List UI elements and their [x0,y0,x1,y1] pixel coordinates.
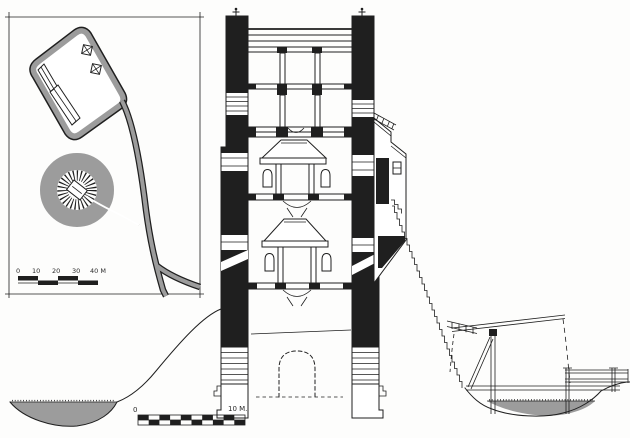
hood-mantel-beam [262,241,328,247]
scale-segment [138,415,149,420]
timber-post [280,53,285,84]
forebuilding-masonry [376,158,389,204]
timber-post [315,95,320,127]
inset-scale-segment [58,276,78,281]
floor-joist [311,127,323,137]
post-capital [312,89,322,95]
inset-scale-label: 0 [16,267,20,275]
floor-joist [248,194,256,200]
right-foundation-stripes [352,347,379,384]
floor-joist [344,194,352,200]
inset-scale-label: 10 [32,267,40,275]
floor-joist [248,127,256,137]
scale-segment [213,420,224,425]
post-capital [277,89,287,95]
drawing-page: 0 10 20 30 40 M [0,0,630,438]
right-wall-masonry [352,117,374,147]
scale-segment [192,420,203,425]
floor-joist [248,84,256,89]
tower-symbol-icon [82,45,93,56]
floor-joist [344,127,352,137]
castle-section-drawing: 0 10 20 30 40 M [0,0,630,438]
right-wall-masonry [352,16,374,100]
scale-segment [181,415,192,420]
left-wall-masonry [221,171,248,235]
hood-post [309,164,314,194]
timber-post [315,53,320,84]
hood-post [276,164,281,194]
floor-joist [248,283,257,289]
hood-post [311,247,316,283]
tower-symbol-icon [91,64,102,75]
inset-scale-label: 20 [52,267,60,275]
scale-segment [159,415,170,420]
pivot-joint [489,329,497,336]
inset-scale-segment [38,281,58,286]
left-wall-masonry [221,147,248,153]
floor-joist [275,283,286,289]
lancet-window [263,170,272,188]
lancet-window [265,254,274,272]
main-scale-end-label: 10 M. [228,405,247,413]
scale-segment [170,420,181,425]
inset-scale-segment [78,281,98,286]
main-scale-start-label: 0 [133,406,137,414]
floor-joist [312,84,322,89]
inset-scale-segment [18,276,38,281]
lancet-window [321,170,330,188]
post-capital [312,47,322,53]
inset-scale-label: 40 M [90,267,106,275]
hood-mantel-beam [260,158,326,164]
floor-joist [344,84,352,89]
floor-joist [273,194,284,200]
floor-joist [343,283,352,289]
left-wall-masonry [226,115,248,147]
left-foundation-stripes [221,347,248,384]
floor-joist [276,127,288,137]
floor-joist [277,84,287,89]
scale-segment [149,420,160,425]
scale-segment [234,420,245,425]
post-capital [277,47,287,53]
scale-segment [224,415,235,420]
floor-joist [309,283,320,289]
inset-scale-label: 30 [72,267,80,275]
left-wall-masonry [226,16,248,93]
scale-segment [202,415,213,420]
lancet-window [322,254,331,272]
floor-joist [308,194,319,200]
timber-post [280,95,285,127]
hood-post [278,247,283,283]
